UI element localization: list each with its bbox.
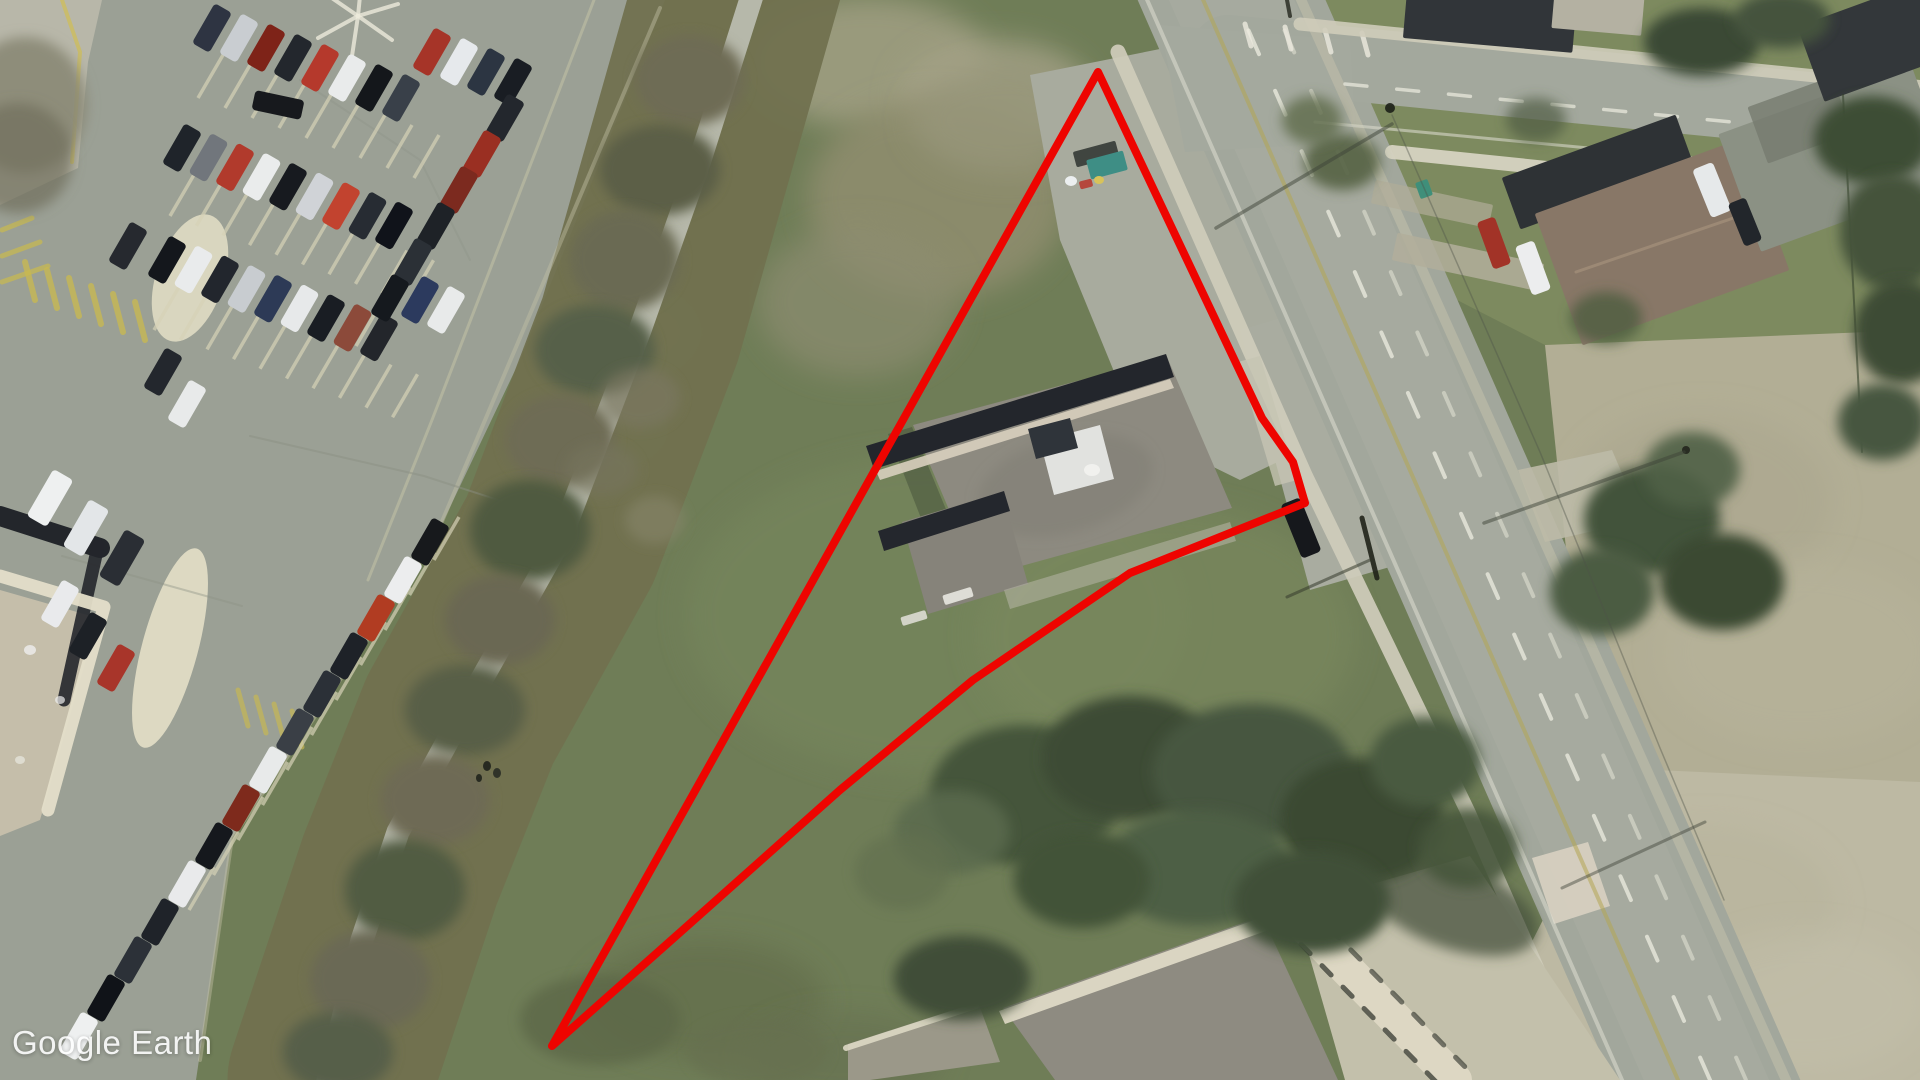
tree-canopy [854,834,950,910]
satellite-imagery [0,0,1920,1080]
terrain-layers [0,0,1920,1080]
tree-canopy [345,840,465,940]
google-earth-viewport[interactable]: Google Earth [0,0,1920,1080]
tree-canopy [1644,432,1740,508]
brush [520,975,680,1065]
pedestrian [493,768,501,778]
picnic-object-white [1065,176,1077,186]
roof-speckle [55,696,65,704]
tree-canopy [1570,292,1642,344]
tree-canopy [405,665,525,755]
brush [625,496,685,544]
tree-canopy [1506,98,1566,142]
tree-canopy [635,35,745,125]
tree-canopy [445,575,555,665]
brush [600,368,680,428]
roof-speckle [24,645,36,655]
google-earth-watermark: Google Earth [12,1024,212,1062]
tree-canopy [470,480,590,580]
tree-canopy [570,210,680,310]
dry-grass-patch [758,227,958,377]
tree-canopy [1234,850,1390,954]
tree-canopy [1418,808,1518,888]
pedestrian [483,761,491,771]
tree-canopy [380,755,490,845]
tree-canopy [1282,96,1342,144]
tree-canopy [1550,548,1654,636]
picnic-object-yellow [1094,176,1104,184]
tree-canopy [1660,534,1784,630]
tree-canopy [894,936,1030,1020]
tree-canopy [1370,717,1480,807]
roof-speckle [15,756,25,764]
tree-canopy [1014,832,1150,928]
tree-canopy [600,125,720,215]
rooftop-vent [1084,464,1100,476]
pedestrian [476,774,482,782]
brush [566,444,638,496]
utility-pole [1385,103,1395,113]
